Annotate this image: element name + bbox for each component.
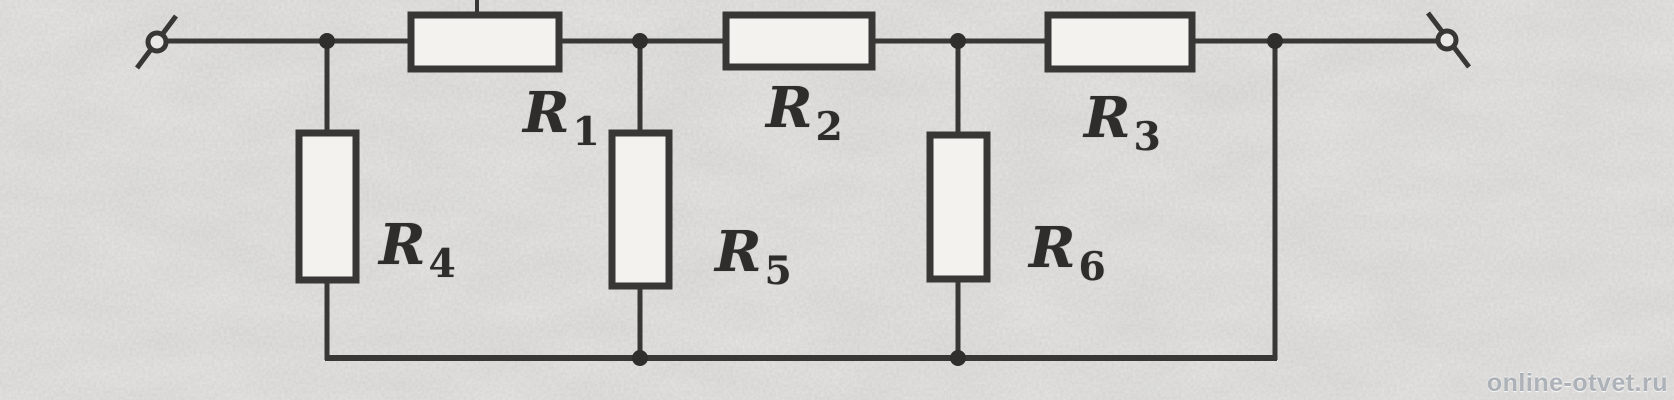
resistor-label-r1: R1	[523, 85, 600, 141]
resistor-body-r4	[299, 133, 356, 280]
label-base: R	[766, 75, 813, 141]
resistor-body-r3	[1048, 15, 1192, 69]
watermark-text: online-otvet.ru	[1487, 369, 1668, 398]
resistor-label-r6: R6	[1029, 220, 1106, 276]
label-subscript: 5	[765, 252, 792, 291]
label-subscript: 1	[573, 113, 600, 152]
resistor-label-r4: R4	[379, 217, 456, 273]
label-subscript: 2	[816, 108, 843, 147]
label-subscript: 4	[429, 245, 456, 284]
resistor-body-r2	[726, 15, 872, 67]
label-base: R	[715, 219, 762, 285]
resistor-body-r6	[930, 135, 987, 279]
label-subscript: 6	[1079, 248, 1106, 287]
label-base: R	[523, 80, 570, 146]
resistor-label-r3: R3	[1084, 90, 1161, 146]
resistor-label-r5: R5	[715, 224, 792, 280]
label-base: R	[379, 212, 426, 278]
scanned-circuit-diagram: R1 R2 R3 R4 R5 R6 online-otvet.ru	[0, 0, 1674, 400]
label-base: R	[1029, 215, 1076, 281]
resistor-body-r5	[612, 133, 669, 286]
circuit-linework	[0, 0, 1674, 400]
resistor-body-r1	[411, 15, 559, 69]
resistor-label-r2: R2	[766, 80, 843, 136]
label-subscript: 3	[1134, 118, 1161, 157]
label-base: R	[1084, 85, 1131, 151]
